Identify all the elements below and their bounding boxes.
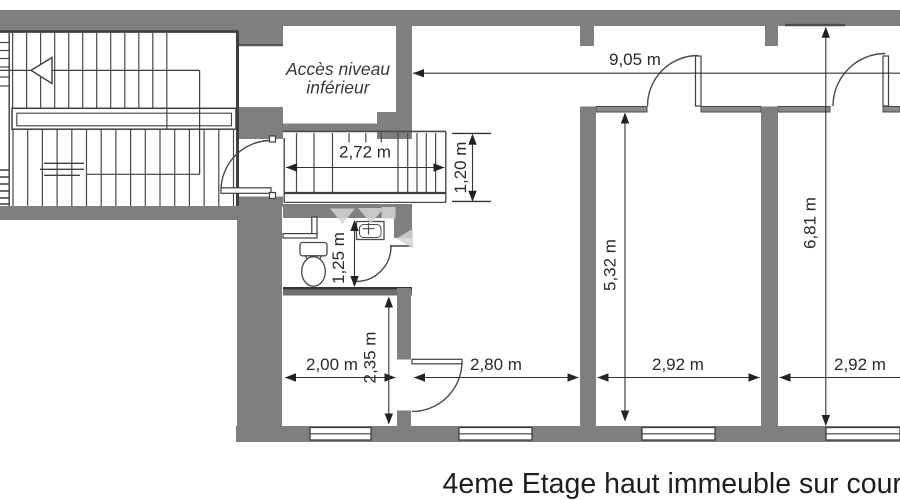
- svg-text:5,32 m: 5,32 m: [601, 239, 620, 291]
- svg-text:inférieur: inférieur: [306, 78, 370, 98]
- svg-text:2,72 m: 2,72 m: [339, 143, 391, 162]
- svg-text:1,20 m: 1,20 m: [451, 142, 470, 194]
- svg-text:Accès niveau: Accès niveau: [285, 59, 390, 79]
- svg-text:2,35 m: 2,35 m: [361, 332, 380, 384]
- svg-text:2,92 m: 2,92 m: [652, 355, 704, 374]
- svg-text:1,25 m: 1,25 m: [329, 232, 348, 284]
- svg-text:2,92 m: 2,92 m: [834, 355, 886, 374]
- svg-text:6,81 m: 6,81 m: [801, 197, 820, 249]
- svg-text:9,05 m: 9,05 m: [609, 50, 661, 69]
- svg-text:2,00 m: 2,00 m: [306, 355, 358, 374]
- svg-text:2,80 m: 2,80 m: [470, 355, 522, 374]
- svg-text:4eme Etage haut immeuble sur c: 4eme Etage haut immeuble sur cour: [443, 468, 900, 500]
